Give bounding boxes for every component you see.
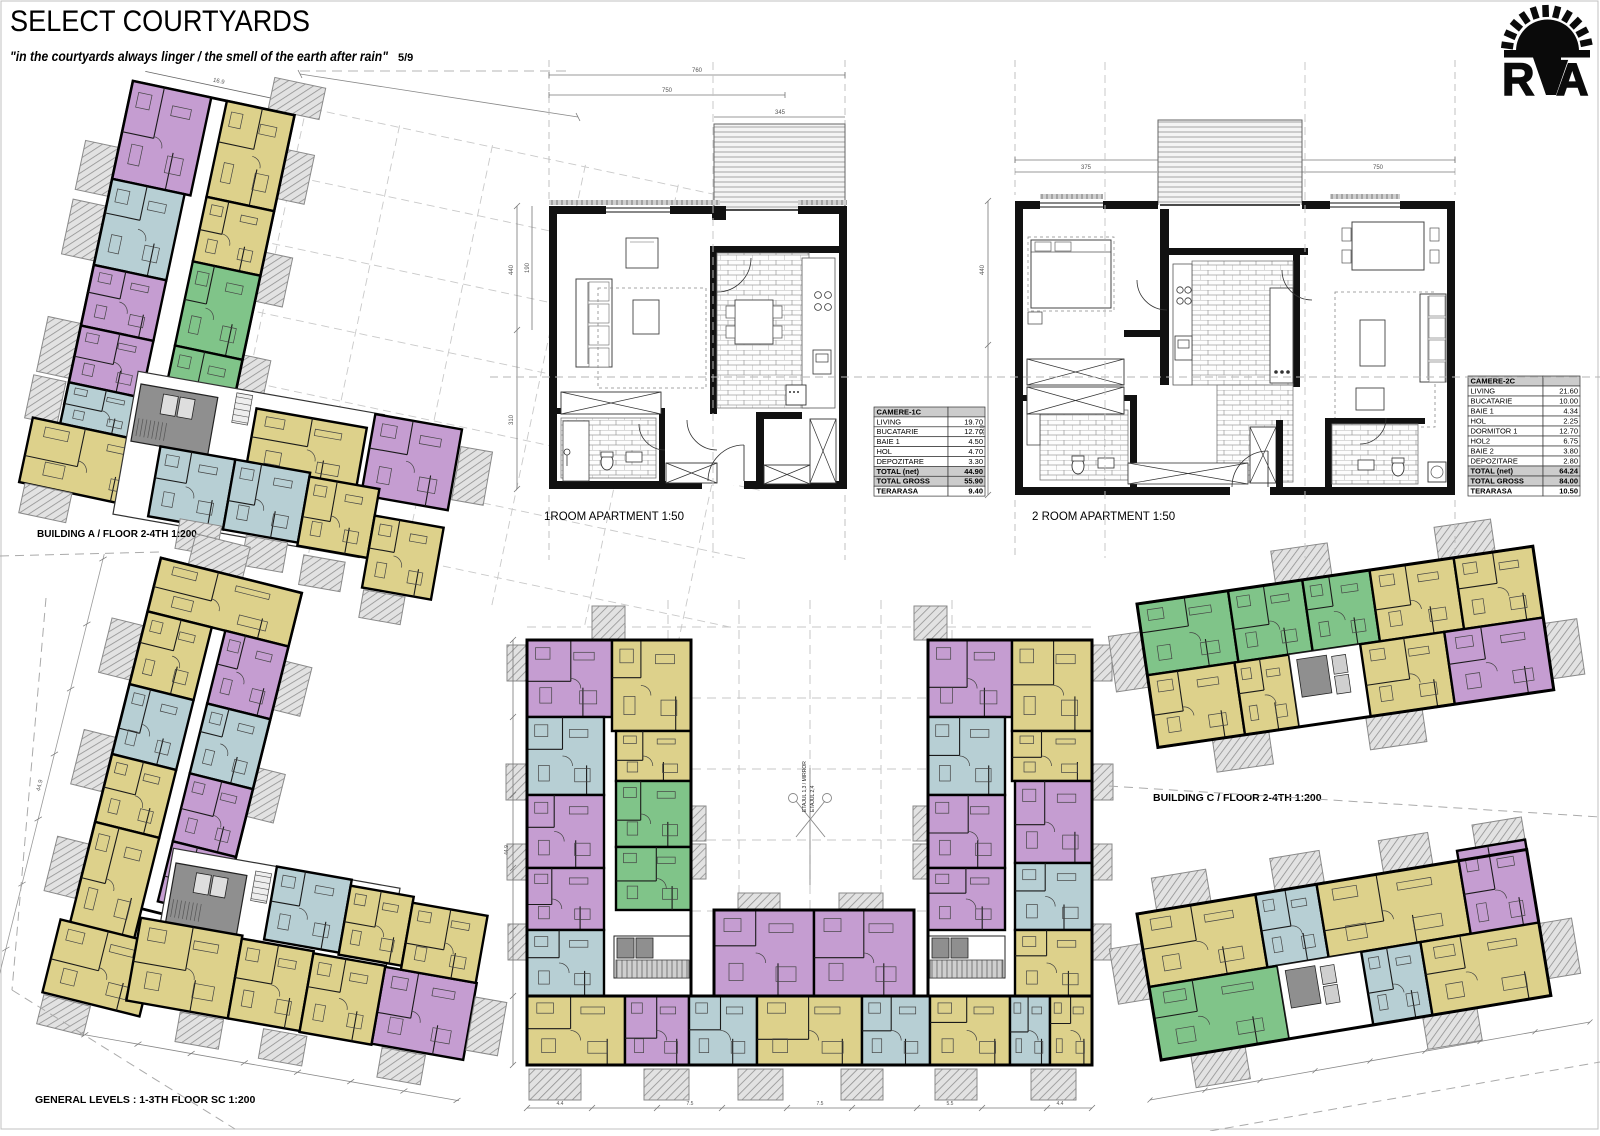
svg-text:19.70: 19.70 (964, 417, 983, 426)
svg-text:BUCATARIE: BUCATARIE (877, 427, 919, 436)
svg-text:7.5: 7.5 (687, 1101, 694, 1107)
svg-text:750: 750 (1373, 165, 1384, 171)
svg-text:BAIE 1: BAIE 1 (1471, 406, 1494, 415)
svg-text:3.30: 3.30 (968, 457, 983, 466)
svg-text:TOTAL GROSS: TOTAL GROSS (1471, 476, 1524, 485)
svg-text:TERARASA: TERARASA (1471, 486, 1513, 495)
svg-text:CAMERE-2C: CAMERE-2C (1471, 376, 1516, 385)
svg-text:10.00: 10.00 (1559, 396, 1578, 405)
svg-text:TOTAL (net): TOTAL (net) (1471, 466, 1514, 475)
svg-text:2 ROOM APARTMENT 1:50: 2 ROOM APARTMENT 1:50 (1032, 511, 1175, 523)
svg-text:BAIE 2: BAIE 2 (1471, 446, 1494, 455)
svg-text:440: 440 (509, 264, 515, 275)
svg-text:LIVING: LIVING (1471, 386, 1496, 395)
svg-text:44.90: 44.90 (964, 467, 983, 476)
svg-text:5.5: 5.5 (947, 1101, 954, 1107)
svg-text:HOL2: HOL2 (1471, 436, 1491, 445)
svg-text:2.80: 2.80 (1563, 456, 1578, 465)
svg-text:190: 190 (525, 262, 531, 273)
svg-text:4.50: 4.50 (968, 437, 983, 446)
svg-text:SELECT COURTYARDS: SELECT COURTYARDS (10, 5, 310, 38)
svg-text:LIVING: LIVING (877, 417, 902, 426)
svg-text:440: 440 (980, 264, 986, 275)
svg-text:DEPOZITARE: DEPOZITARE (877, 457, 924, 466)
svg-text:7.5: 7.5 (817, 1101, 824, 1107)
svg-text:4.4: 4.4 (1057, 1101, 1064, 1107)
svg-text:CAMERE-1C: CAMERE-1C (877, 407, 922, 416)
svg-text:TERARASA: TERARASA (877, 487, 919, 496)
svg-text:HOL: HOL (1471, 416, 1486, 425)
svg-text:BUCATARIE: BUCATARIE (1471, 396, 1513, 405)
svg-text:1ROOM APARTMENT 1:50: 1ROOM APARTMENT 1:50 (544, 511, 684, 523)
svg-text:345: 345 (775, 110, 786, 116)
svg-text:GENERAL LEVELS : 1-3TH FLOOR: GENERAL LEVELS : 1-3TH FLOOR SC 1:200 (35, 1094, 256, 1106)
svg-text:BUILDING A / FLOOR 2-4TH 1:20: BUILDING A / FLOOR 2-4TH 1:200 (37, 529, 197, 540)
svg-text:6.75: 6.75 (1563, 436, 1578, 445)
svg-text:9.40: 9.40 (968, 487, 983, 496)
svg-text:2.25: 2.25 (1563, 416, 1578, 425)
svg-text:R: R (1502, 54, 1535, 105)
svg-text:750: 750 (662, 88, 673, 94)
svg-text:DEPOZITARE: DEPOZITARE (1471, 456, 1518, 465)
svg-text:12.70: 12.70 (1559, 426, 1578, 435)
svg-text:64.24: 64.24 (1559, 466, 1579, 475)
svg-text:HOL: HOL (877, 447, 892, 456)
svg-text:DORMITOR 1: DORMITOR 1 (1471, 426, 1518, 435)
svg-text:TOTAL GROSS: TOTAL GROSS (877, 477, 930, 486)
svg-text:44.9: 44.9 (504, 845, 510, 855)
svg-text:ETAJUL 1,3 / MIRROR: ETAJUL 1,3 / MIRROR (802, 761, 808, 812)
svg-text:ETAJUL 2,4: ETAJUL 2,4 (810, 785, 816, 812)
svg-text:5/9: 5/9 (398, 52, 413, 64)
svg-text:10.50: 10.50 (1559, 486, 1578, 495)
svg-text:4.4: 4.4 (557, 1101, 564, 1107)
svg-text:3.80: 3.80 (1563, 446, 1578, 455)
svg-text:BAIE 1: BAIE 1 (877, 437, 900, 446)
svg-text:"in the courtyards always ling: "in the courtyards always linger / the s… (10, 49, 389, 64)
svg-text:310: 310 (980, 424, 986, 435)
svg-text:A: A (1556, 54, 1589, 105)
svg-text:4.70: 4.70 (968, 447, 983, 456)
svg-text:760: 760 (692, 68, 703, 74)
svg-text:55.90: 55.90 (964, 477, 983, 486)
svg-text:4.34: 4.34 (1563, 406, 1578, 415)
svg-text:21.60: 21.60 (1559, 386, 1578, 395)
svg-text:310: 310 (509, 414, 515, 425)
svg-text:84.00: 84.00 (1559, 476, 1578, 485)
svg-text:TOTAL (net): TOTAL (net) (877, 467, 920, 476)
svg-text:375: 375 (1081, 165, 1092, 171)
